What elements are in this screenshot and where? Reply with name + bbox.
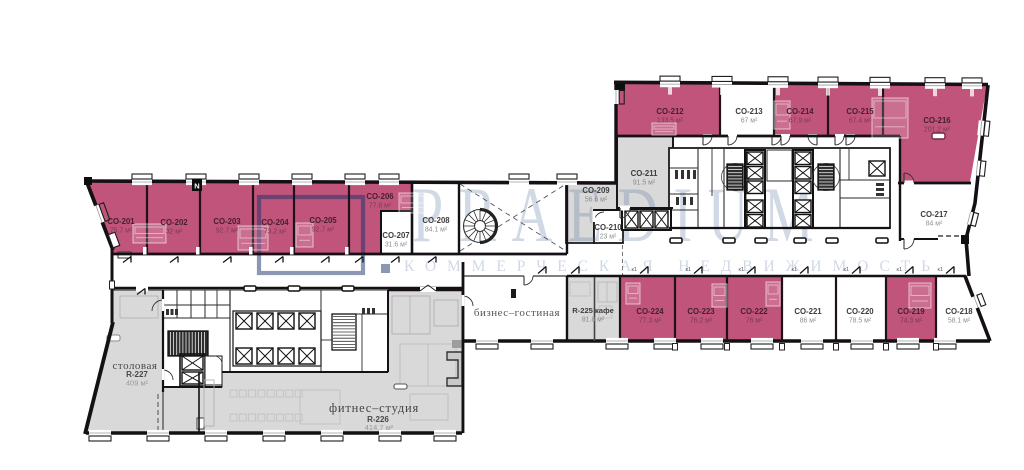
svg-text:409 м²: 409 м² — [126, 379, 149, 388]
svg-text:фитнес–студия: фитнес–студия — [329, 401, 419, 415]
svg-text:CO-203: CO-203 — [213, 217, 241, 226]
svg-text:к1: к1 — [844, 267, 849, 273]
svg-text:86 м²: 86 м² — [800, 318, 817, 325]
svg-text:к1: к1 — [792, 267, 797, 273]
svg-text:CO-224: CO-224 — [636, 307, 664, 316]
svg-text:76.2 м²: 76.2 м² — [690, 318, 713, 325]
svg-text:CO-219: CO-219 — [897, 307, 925, 316]
svg-text:77.8 м²: 77.8 м² — [369, 203, 392, 210]
svg-text:91.5 м²: 91.5 м² — [633, 180, 656, 187]
svg-text:CO-210: CO-210 — [594, 223, 622, 232]
svg-text:84 м²: 84 м² — [926, 221, 943, 228]
svg-text:CO-220: CO-220 — [846, 307, 874, 316]
svg-text:CO-206: CO-206 — [366, 192, 394, 201]
svg-text:75.7 м²: 75.7 м² — [110, 228, 133, 235]
svg-text:67 м²: 67 м² — [741, 118, 758, 125]
svg-text:бизнес–гостиная: бизнес–гостиная — [474, 307, 560, 319]
svg-text:CO-212: CO-212 — [656, 107, 684, 116]
svg-text:R-225 кафе: R-225 кафе — [572, 306, 614, 315]
svg-text:CO-209: CO-209 — [582, 186, 610, 195]
svg-text:CO-223: CO-223 — [687, 307, 715, 316]
svg-text:к1: к1 — [938, 267, 943, 273]
svg-text:84.1 м²: 84.1 м² — [425, 227, 448, 234]
svg-text:58.1 м²: 58.1 м² — [948, 318, 971, 325]
svg-text:76 м²: 76 м² — [746, 318, 763, 325]
svg-text:CO-216: CO-216 — [923, 116, 951, 125]
svg-text:414.7 м²: 414.7 м² — [365, 423, 394, 432]
svg-text:к1: к1 — [897, 267, 902, 273]
svg-text:CO-215: CO-215 — [846, 107, 874, 116]
svg-text:CO-213: CO-213 — [735, 107, 763, 116]
svg-text:CO-211: CO-211 — [631, 169, 659, 178]
svg-text:23 м²: 23 м² — [600, 234, 617, 241]
svg-text:к1: к1 — [632, 267, 637, 273]
svg-text:к1: к1 — [686, 267, 691, 273]
svg-text:CO-201: CO-201 — [107, 217, 135, 226]
svg-text:32 м²: 32 м² — [166, 229, 183, 236]
svg-text:N: N — [194, 182, 199, 191]
svg-text:77.3 м²: 77.3 м² — [639, 318, 662, 325]
svg-text:CO-221: CO-221 — [794, 307, 822, 316]
svg-text:133.5 м²: 133.5 м² — [657, 118, 684, 125]
svg-text:67.9 м²: 67.9 м² — [789, 118, 812, 125]
svg-text:201.2 м²: 201.2 м² — [924, 127, 951, 134]
svg-text:CO-207: CO-207 — [382, 231, 409, 240]
svg-text:92.7 м²: 92.7 м² — [312, 227, 335, 234]
svg-text:CO-222: CO-222 — [740, 307, 768, 316]
svg-text:CO-214: CO-214 — [786, 107, 814, 116]
svg-text:92.7 м²: 92.7 м² — [216, 228, 239, 235]
svg-text:к1: к1 — [739, 267, 744, 273]
svg-text:81.8 м²: 81.8 м² — [582, 317, 605, 324]
svg-text:CO-208: CO-208 — [422, 216, 450, 225]
svg-text:67.4 м²: 67.4 м² — [849, 118, 872, 125]
svg-text:78.5 м²: 78.5 м² — [849, 318, 872, 325]
svg-text:CO-202: CO-202 — [160, 218, 188, 227]
svg-text:CO-205: CO-205 — [309, 216, 337, 225]
svg-text:74.3 м²: 74.3 м² — [900, 318, 923, 325]
svg-text:CO-217: CO-217 — [920, 210, 947, 219]
svg-text:56.6 м²: 56.6 м² — [585, 197, 608, 204]
svg-text:31.6 м²: 31.6 м² — [385, 242, 408, 249]
svg-text:73.2 м²: 73.2 м² — [264, 229, 287, 236]
svg-text:CO-204: CO-204 — [261, 218, 289, 227]
svg-text:CO-218: CO-218 — [945, 307, 973, 316]
